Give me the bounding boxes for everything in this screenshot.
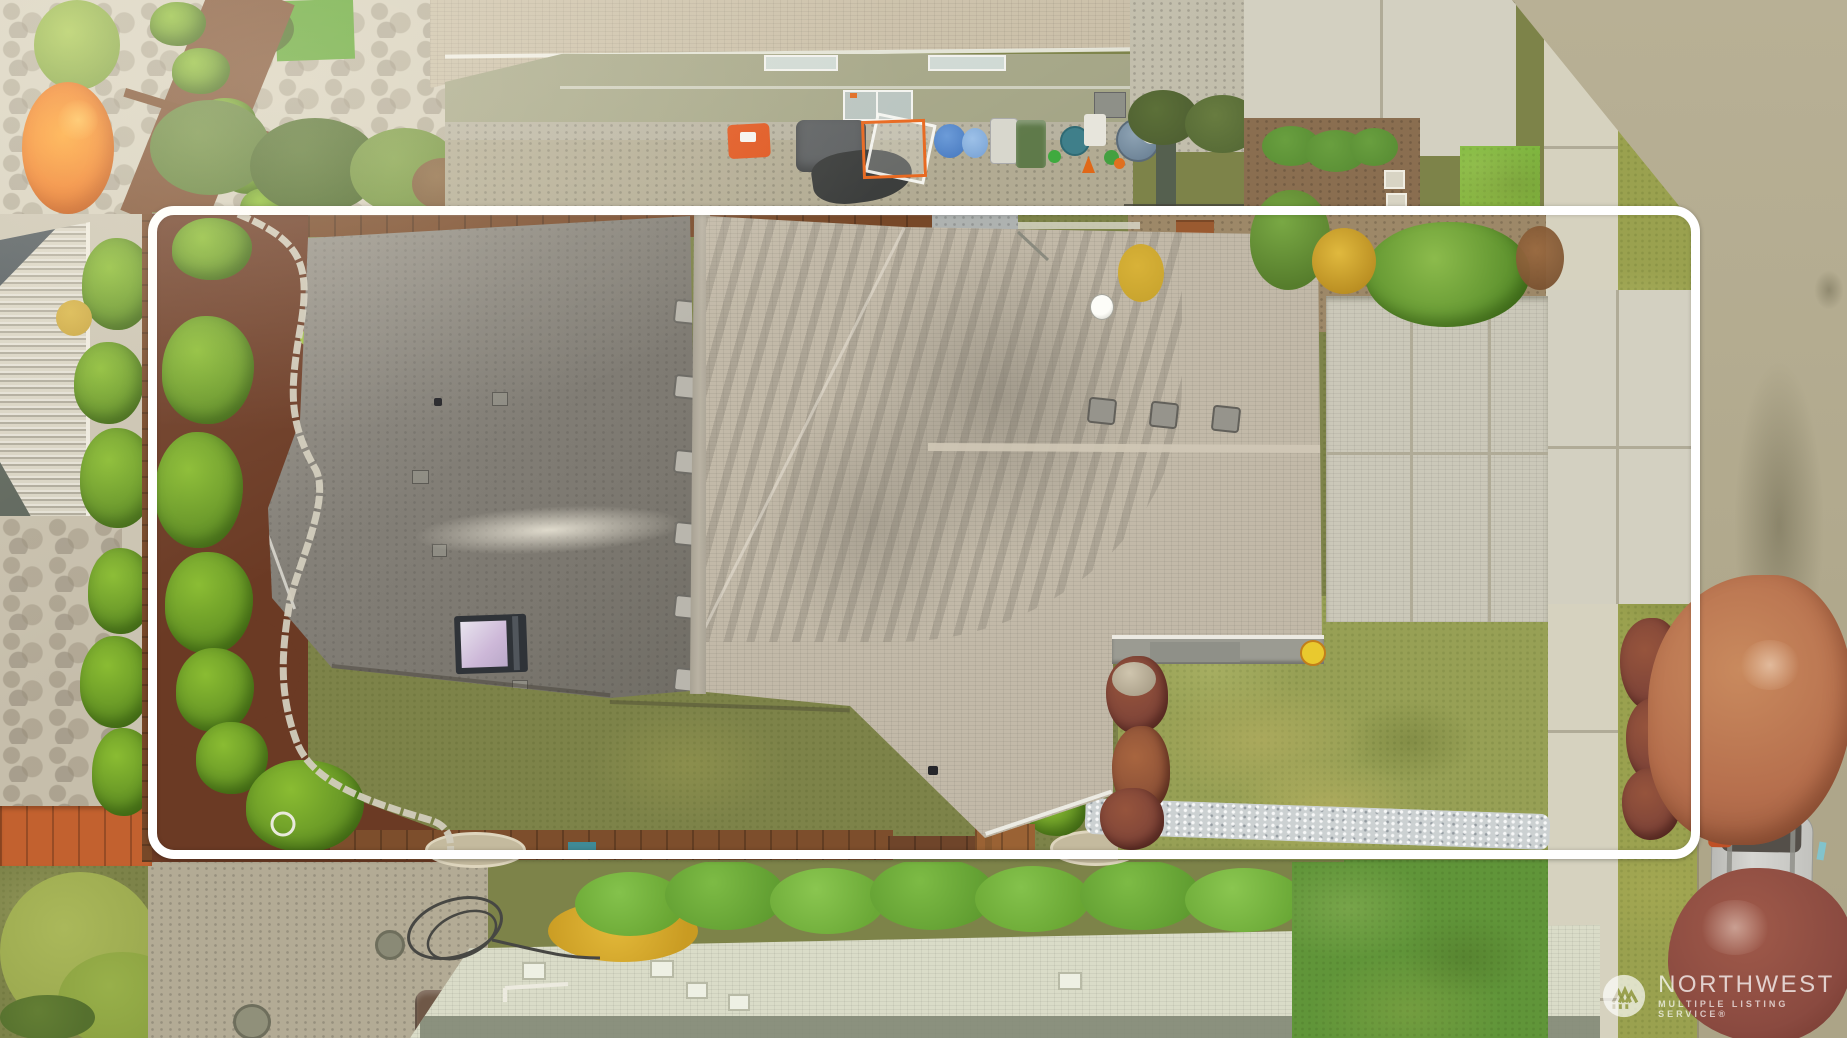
watermark-tagline: MULTIPLE LISTING SERVICE®	[1658, 999, 1847, 1019]
aerial-photo: NORTHWEST MULTIPLE LISTING SERVICE®	[0, 0, 1847, 1038]
garden-hose-coil	[401, 887, 510, 970]
watermark: NORTHWEST MULTIPLE LISTING SERVICE®	[1602, 972, 1847, 1020]
white-pipe	[505, 984, 568, 1002]
property-boundary-outline	[148, 206, 1700, 859]
watermark-brand: NORTHWEST	[1658, 972, 1847, 998]
watermark-text: NORTHWEST MULTIPLE LISTING SERVICE®	[1658, 972, 1847, 1019]
nwmls-logo-icon	[1602, 972, 1646, 1020]
garden-hose	[492, 940, 600, 958]
